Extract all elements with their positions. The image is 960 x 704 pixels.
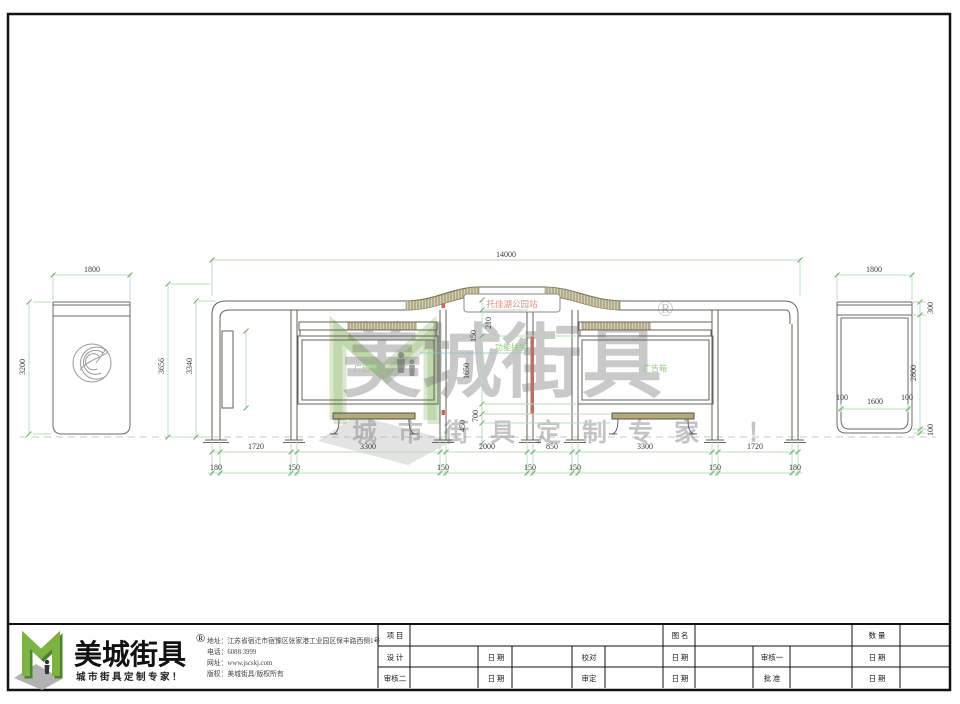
dim-total-width: 14000 bbox=[496, 250, 516, 259]
tb-designer: 设 计 bbox=[387, 652, 404, 662]
watermark-registered-mark: ® bbox=[657, 296, 674, 321]
tb-reviewer2: 审核二 bbox=[384, 673, 407, 683]
dim-left-height: 3200 bbox=[18, 359, 27, 375]
label-ad-box-right: 广告箱 bbox=[643, 363, 667, 373]
dim-post-1: 180 bbox=[210, 463, 222, 472]
company-copyright: 版权：美城街具/版权所有 bbox=[207, 669, 284, 678]
footer-registered-mark: ® bbox=[196, 631, 205, 645]
right-panel-outline bbox=[837, 302, 912, 433]
swirl-logo bbox=[73, 344, 111, 382]
company-address: 地址：江苏省宿迁市宿豫区张家港工业园区保丰路西侧1号 bbox=[207, 636, 381, 645]
dim-height-outer: 3656 bbox=[157, 358, 166, 374]
side-sign-panel bbox=[222, 331, 233, 408]
dim-adbox-height: 1650 bbox=[462, 363, 471, 379]
footer-brand: 美城街具 bbox=[74, 638, 186, 671]
dim-right-base: 100 bbox=[926, 424, 935, 436]
dim-height-inner: 3340 bbox=[185, 358, 194, 374]
tb-date-1: 日 期 bbox=[488, 653, 505, 662]
logo-figure bbox=[45, 660, 50, 674]
dim-bay-5: 3300 bbox=[637, 442, 653, 451]
dim-post-6: 150 bbox=[709, 463, 721, 472]
tb-quantity: 数 量 bbox=[869, 630, 886, 640]
dim-right-body: 2800 bbox=[909, 365, 918, 381]
company-website: 网址：www.jscskj.com bbox=[207, 658, 273, 667]
dim-post-4: 150 bbox=[524, 463, 536, 472]
company-info: 地址：江苏省宿迁市宿豫区张家港工业园区保丰路西侧1号 电话：6088 3999 … bbox=[207, 636, 381, 678]
left-side-view bbox=[53, 302, 130, 434]
tb-date-4: 日 期 bbox=[488, 674, 505, 683]
station-sign-text: 托佳湖公园站 bbox=[486, 299, 538, 309]
tb-reviewer1: 审核一 bbox=[761, 652, 784, 662]
right-side-view bbox=[837, 302, 912, 433]
dim-right-bottom-left: 100 bbox=[836, 393, 848, 402]
dim-bay-6: 1720 bbox=[747, 442, 763, 451]
tb-date-2: 日 期 bbox=[672, 653, 689, 662]
dim-left-width: 1800 bbox=[84, 265, 100, 274]
dim-seat-height: 450 bbox=[458, 420, 467, 432]
dim-post-3: 150 bbox=[437, 463, 449, 472]
dim-bay-2: 3300 bbox=[360, 442, 376, 451]
dim-right-bottom-center: 1600 bbox=[867, 397, 883, 406]
right-panel-inner bbox=[841, 318, 908, 429]
company-phone: 电话：6088 3999 bbox=[207, 647, 257, 656]
tb-proofread: 校对 bbox=[582, 652, 597, 662]
dim-bay-1: 1720 bbox=[248, 442, 264, 451]
title-block-labels: 项 目 图 名 数 量 设 计 日 期 校对 日 期 审核一 日 期 审核二 日… bbox=[384, 630, 886, 683]
watermark-brand: 美城街具 bbox=[342, 320, 662, 408]
tb-ratifier: 批 准 bbox=[764, 673, 781, 683]
dim-post-2: 150 bbox=[288, 463, 300, 472]
drawing-sheet: 美城街具 ® 城市街具定制专家 ！ bbox=[0, 0, 960, 704]
dim-post-5: 150 bbox=[569, 463, 581, 472]
dim-right-top: 300 bbox=[926, 302, 935, 314]
tb-date-3: 日 期 bbox=[869, 653, 886, 662]
dim-bench-height: 700 bbox=[471, 410, 480, 422]
tb-date-5: 日 期 bbox=[672, 674, 689, 683]
label-ad-box-left: 广告箱 bbox=[354, 363, 378, 373]
tb-approver: 审定 bbox=[582, 673, 597, 683]
dim-roof-band: 210 bbox=[484, 317, 493, 329]
dim-bay-4: 850 bbox=[546, 442, 558, 451]
left-panel-outline bbox=[53, 302, 130, 434]
dim-bay-3: 2000 bbox=[479, 442, 495, 451]
tb-drawing-name: 图 名 bbox=[672, 630, 689, 640]
footer-tagline: 城市街具定制专家！ bbox=[76, 671, 184, 683]
dim-canopy-band: 150 bbox=[469, 330, 478, 342]
dim-right-width: 1800 bbox=[866, 265, 882, 274]
tb-date-6: 日 期 bbox=[869, 674, 886, 683]
company-logo bbox=[14, 640, 62, 690]
tb-project: 项 目 bbox=[387, 631, 404, 640]
dim-post-7: 180 bbox=[789, 463, 801, 472]
label-handrail: 功能扶手 bbox=[495, 342, 527, 352]
cad-canvas: 美城街具 ® 城市街具定制专家 ！ bbox=[0, 0, 960, 704]
dim-right-bottom-right: 100 bbox=[901, 393, 913, 402]
